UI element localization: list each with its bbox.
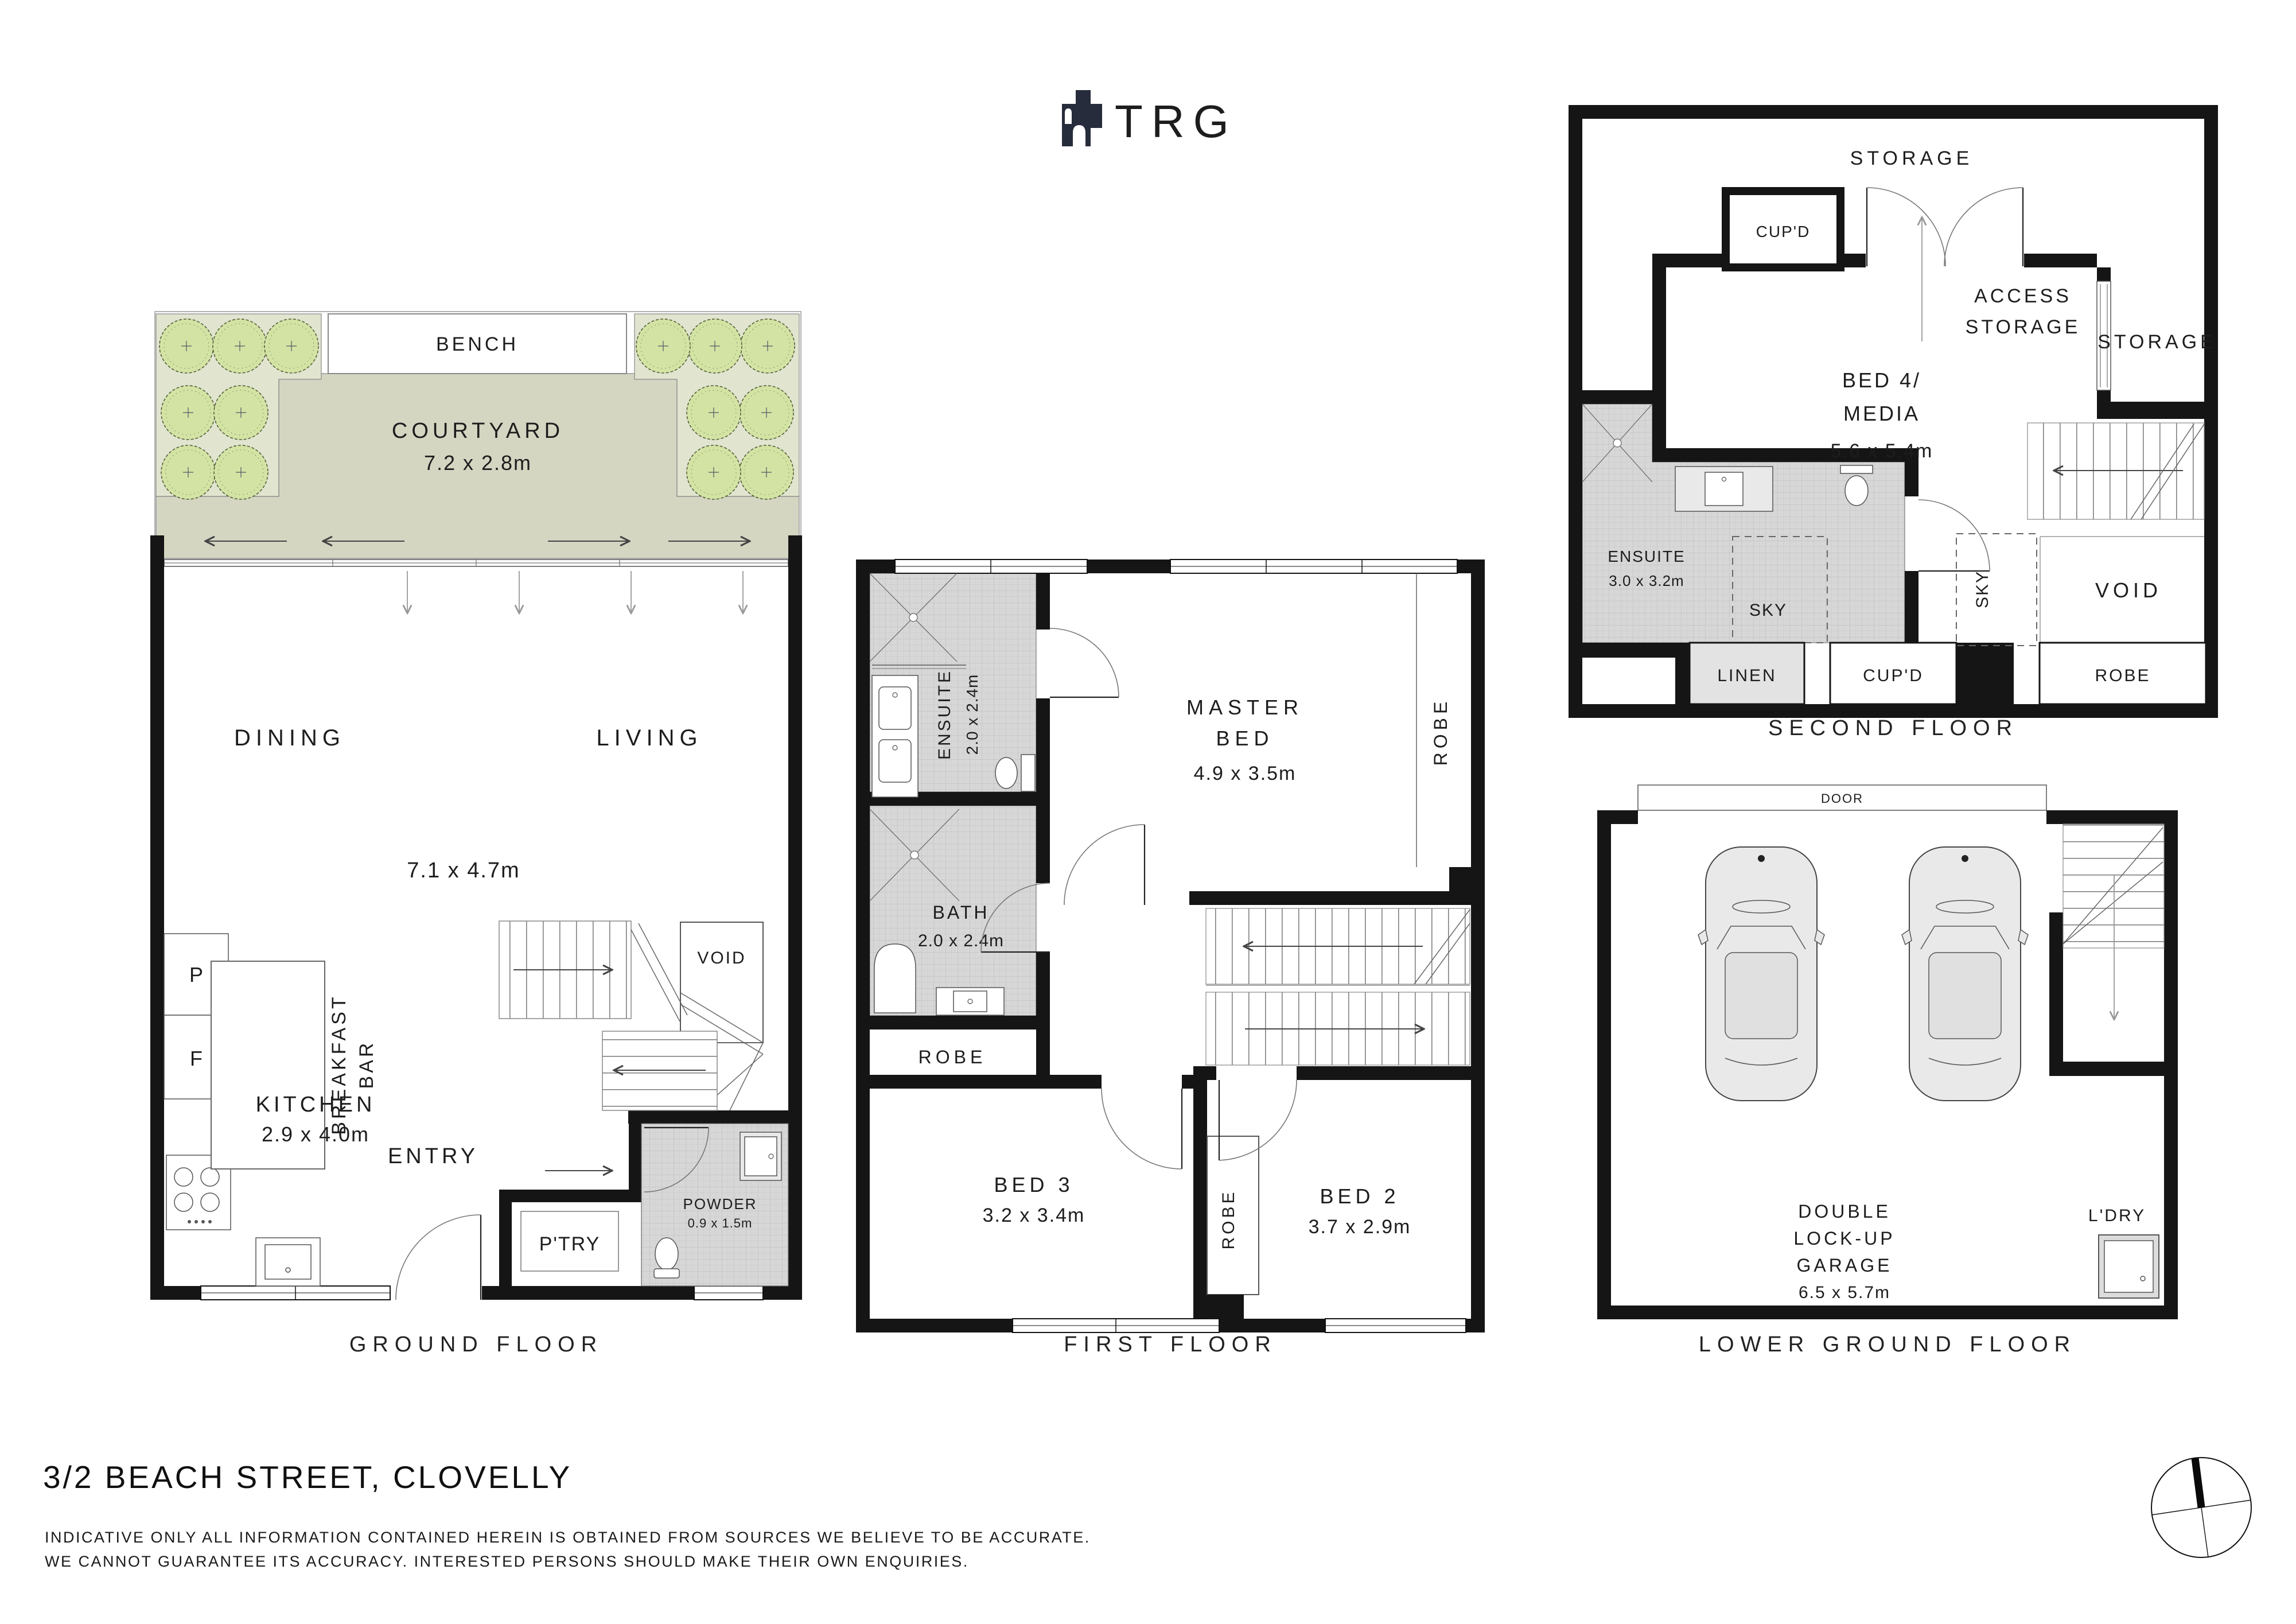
pantry-label: P	[189, 963, 203, 986]
bed4-label2: MEDIA	[1843, 402, 1920, 425]
bed3-label: BED 3	[994, 1173, 1073, 1196]
courtyard-label: COURTYARD	[392, 419, 564, 443]
bed2-dim: 3.7 x 2.9m	[1309, 1216, 1411, 1238]
second-cupd-top: CUP'D	[1726, 191, 1840, 267]
powder-label: POWDER	[683, 1195, 757, 1213]
garage-dim: 6.5 x 5.7m	[1799, 1283, 1890, 1302]
courtyard-dim: 7.2 x 2.8m	[424, 451, 532, 475]
bench-label: BENCH	[436, 333, 519, 355]
master-robe-label: ROBE	[1430, 698, 1451, 766]
trg-castle-icon	[1062, 90, 1102, 146]
car-icon-left	[1698, 847, 1824, 1101]
lower-stairs	[2063, 824, 2164, 1019]
second-storage-right-label: STORAGE	[2097, 331, 2217, 353]
first-floor-title: FIRST FLOOR	[970, 1332, 1371, 1357]
powder-toilet-icon	[654, 1238, 679, 1278]
bed2-label: BED 2	[1320, 1184, 1399, 1208]
second-storage-top-label: STORAGE	[1850, 147, 1974, 169]
garage-door-label: DOOR	[1821, 791, 1863, 806]
first-master: MASTER BED 4.9 x 3.5m ROBE	[1064, 573, 1451, 905]
floorplan-page: { "logo": { "brand": "TRG" }, "floors": …	[0, 0, 2296, 1624]
floorplan-second: CUP'D STORAGE ACCESS STORAGE BED 4/ MEDI…	[1560, 95, 2226, 766]
access-label1: ACCESS	[1974, 285, 2072, 307]
car-icon-right	[1902, 847, 2028, 1101]
bed4-label1: BED 4/	[1842, 368, 1921, 392]
bed4-dim: 5.6 x 5.4m	[1831, 440, 1933, 462]
sliding-door-track	[164, 560, 788, 566]
second-ensuite-dim: 3.0 x 3.2m	[1609, 572, 1684, 589]
floorplan-ground: BENCH COURTYARD 7.2 x 2.8m	[143, 307, 809, 1320]
kitchen-label: KITCHEN	[256, 1093, 376, 1117]
first-robe-left-label: ROBE	[919, 1047, 987, 1067]
window-kitchen	[201, 1286, 390, 1300]
second-robe-label: ROBE	[2095, 666, 2150, 685]
lower-ground-floor-title: LOWER GROUND FLOOR	[1687, 1332, 2088, 1357]
window-powder	[694, 1286, 763, 1300]
second-ensuite-label: ENSUITE	[1608, 547, 1685, 565]
trg-logo-text: TRG	[1115, 96, 1237, 147]
powder-basin-icon	[740, 1132, 781, 1180]
property-address: 3/2 BEACH STREET, CLOVELLY	[43, 1459, 572, 1495]
second-robe-box: ROBE	[2040, 643, 2206, 704]
second-void-label: VOID	[2095, 578, 2162, 602]
entry-label: ENTRY	[388, 1144, 478, 1168]
master-dim: 4.9 x 3.5m	[1194, 763, 1297, 784]
mid-robe-label: ROBE	[1219, 1189, 1238, 1249]
floorplan-first: ENSUITE 2.0 x 2.4m BATH 2.0 x 2.4m ROBE …	[849, 542, 1492, 1354]
floorplan-lower: DOOR DOUBLE LOCK-UP GARAGE 6.5 x 5.7m L'…	[1589, 775, 2186, 1354]
first-bath-label: BATH	[933, 902, 990, 923]
cupd-bottom-box: CUP'D	[1830, 643, 1956, 704]
ldry-label: L'DRY	[2088, 1206, 2146, 1225]
kitchen-sink-icon	[256, 1238, 320, 1286]
second-void: VOID	[2040, 537, 2204, 643]
garage-label2: LOCK-UP	[1793, 1228, 1895, 1249]
powder-dim: 0.9 x 1.5m	[688, 1216, 753, 1230]
dining-label: DINING	[234, 725, 345, 751]
entry-door	[396, 1215, 481, 1300]
linen-label: LINEN	[1717, 666, 1776, 685]
ground-floor-title: GROUND FLOOR	[275, 1332, 677, 1357]
garage-label3: GARAGE	[1797, 1255, 1893, 1276]
bed3-dim: 3.2 x 3.4m	[983, 1205, 1085, 1226]
sky-mid: SKY	[1956, 534, 2037, 646]
master-label1: MASTER	[1186, 696, 1303, 719]
master-label2: BED	[1216, 726, 1274, 750]
laundry-trough-icon	[2099, 1235, 2159, 1298]
kitchen-dim: 2.9 x 4.0m	[262, 1122, 369, 1146]
mid-robe: ROBE	[1207, 1136, 1259, 1319]
courtyard-area: BENCH COURTYARD 7.2 x 2.8m	[155, 312, 801, 612]
ground-void-label: VOID	[697, 949, 746, 968]
garage-door-strip: DOOR	[1638, 785, 2046, 810]
access-label2: STORAGE	[1966, 316, 2081, 338]
living-label: LIVING	[596, 725, 702, 751]
sky-mid-label: SKY	[1973, 570, 1992, 608]
first-bath-dim: 2.0 x 2.4m	[918, 931, 1004, 950]
cupd-bottom-label: CUP'D	[1863, 666, 1924, 685]
compass-icon	[2147, 1453, 2256, 1562]
second-stairs	[2028, 423, 2204, 519]
living-dim: 7.1 x 4.7m	[407, 858, 520, 883]
first-ensuite-dim: 2.0 x 2.4m	[963, 674, 981, 755]
ptry-room: P'TRY	[521, 1211, 618, 1271]
second-floor-title: SECOND FLOOR	[1692, 716, 2094, 741]
bar-label: BAR	[356, 1040, 378, 1089]
disclaimer-line1: INDICATIVE ONLY ALL INFORMATION CONTAINE…	[45, 1529, 1091, 1547]
bed3-door	[1102, 1089, 1182, 1169]
first-ensuite-label: ENSUITE	[935, 669, 954, 760]
powder-room: POWDER 0.9 x 1.5m	[641, 1124, 788, 1286]
door-swing-arrows	[407, 571, 743, 612]
second-cupd-top-label: CUP'D	[1756, 223, 1811, 240]
linen-box: LINEN	[1690, 643, 1804, 704]
garage-label1: DOUBLE	[1798, 1201, 1891, 1222]
ptry-label: P'TRY	[539, 1233, 601, 1255]
first-stairs	[1206, 908, 1470, 1065]
sky-ensuite-label: SKY	[1749, 601, 1787, 620]
fridge-label: F	[190, 1047, 203, 1070]
disclaimer-line2: WE CANNOT GUARANTEE ITS ACCURACY. INTERE…	[45, 1553, 969, 1571]
trg-logo: TRG	[1057, 83, 1247, 152]
